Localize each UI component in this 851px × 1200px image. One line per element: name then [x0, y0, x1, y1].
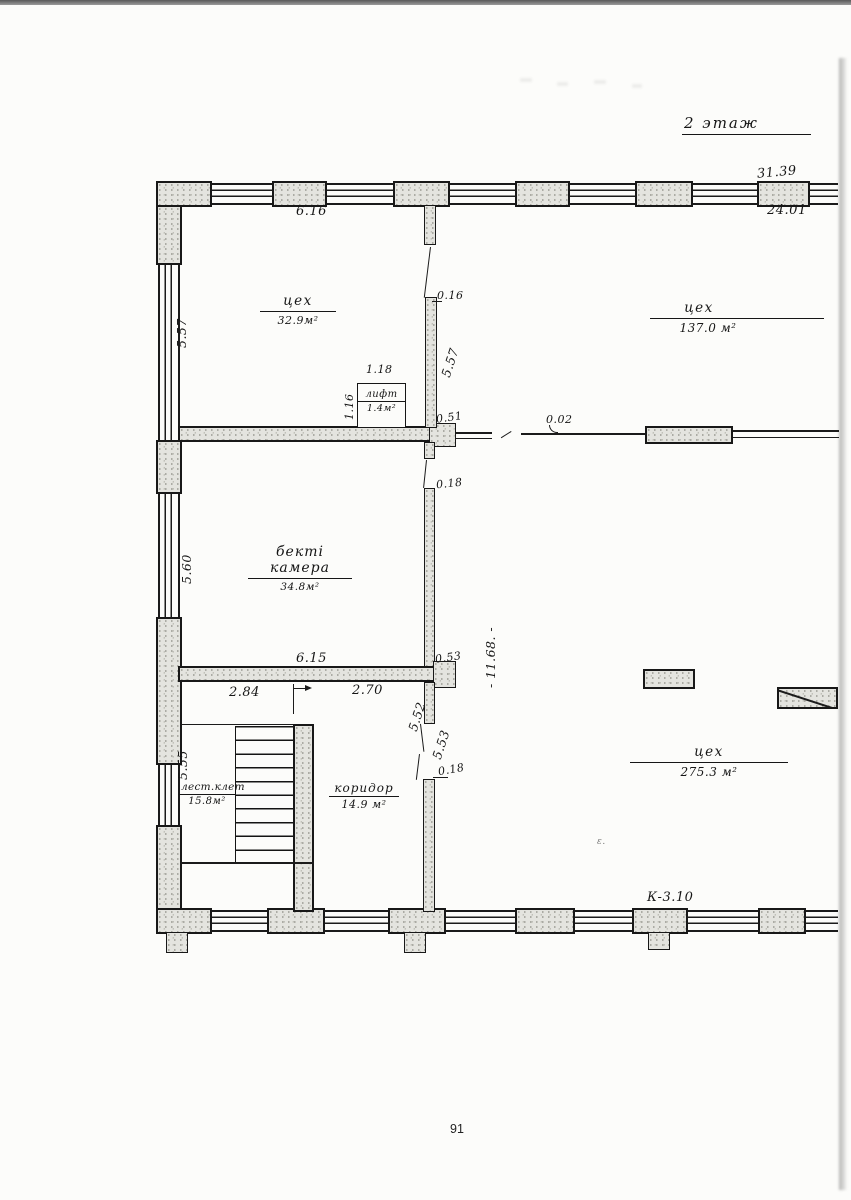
page-edge-shadow [839, 58, 847, 1190]
left-wall-pier [156, 440, 182, 494]
left-wall-window [158, 494, 180, 617]
stair-treads [235, 726, 293, 863]
scan-speck [557, 82, 568, 86]
left-wall-window [158, 265, 180, 440]
room-label-corridor: коридор 14.9 м² [329, 781, 399, 811]
bottom-wall-pier [632, 908, 688, 934]
pier-mid [645, 426, 733, 444]
room-area: 34.8м² [248, 579, 352, 593]
dim-partition-end-053: 0.53 [434, 650, 462, 665]
top-wall-corner-block [156, 181, 212, 207]
door-leaf-line [423, 460, 427, 488]
dim-corridor-lower-553: 5.53 [431, 729, 452, 761]
page-number: 91 [450, 1122, 464, 1136]
scanned-floor-plan-page: 2 этаж [0, 0, 851, 1200]
top-wall-pier [635, 181, 693, 207]
door-leaf-line [424, 247, 431, 298]
room-area: 32.9м² [260, 312, 336, 327]
top-wall-pier [515, 181, 570, 207]
dim-left-window-middle: 5.60 [181, 554, 194, 584]
top-wall-window [327, 183, 393, 205]
stair-side-wall [293, 724, 314, 912]
room-area: 1.4м² [358, 402, 405, 414]
dim-top-inner: 24.01 [767, 204, 807, 217]
scan-speck [594, 80, 606, 84]
dim-left-window-lower: 5.55 [177, 750, 190, 780]
room-name: цех [260, 293, 336, 312]
room-name: цех [630, 744, 788, 763]
thin-wall [456, 432, 492, 439]
dim-left-window-upper: 5.57 [176, 318, 189, 348]
door-leaf-line [501, 431, 512, 438]
dim-top-total: 31.39 [757, 164, 798, 180]
dim-seg-284: 2.84 [229, 686, 260, 699]
top-wall-window [693, 183, 757, 205]
dim-mid-door-018: 0.18 [435, 477, 463, 491]
door-leaf-line [416, 754, 420, 780]
room-area: 275.3 м² [630, 763, 788, 779]
pilaster [166, 932, 188, 953]
room-name: цех [650, 300, 824, 319]
dim-big-room-depth: - 11.68. - [485, 627, 498, 688]
bottom-wall-pier [758, 908, 806, 934]
left-wall-pier [156, 825, 182, 912]
arrowhead [305, 685, 312, 691]
room-name: бекті камера [248, 544, 352, 579]
bottom-wall-pier [515, 908, 575, 934]
dim-lift-depth: 1.16 [344, 394, 355, 421]
center-wall-stub [424, 205, 436, 245]
dim-mid-wall-offset: 0.16 [437, 290, 464, 301]
top-wall-window [212, 183, 272, 205]
left-wall-corner-block [156, 205, 182, 265]
bottom-wall-window [325, 910, 388, 932]
top-wall-window [570, 183, 635, 205]
bottom-wall-window [688, 910, 758, 932]
column-block-crossed [777, 687, 838, 709]
room-label-staircase: лест.клет 15.8м² [179, 781, 235, 807]
center-wall-bottom [423, 779, 435, 912]
dim-junction-051: 0.51 [435, 410, 463, 425]
leader-002 [549, 425, 558, 433]
scan-speck [632, 84, 642, 88]
stair-room-bottom-line [180, 862, 314, 864]
scan-top-edge [0, 0, 851, 5]
bottom-wall-pier [388, 908, 446, 934]
room-name: лест.клет [179, 781, 235, 795]
partition-upper [178, 426, 436, 442]
room-name: коридор [329, 781, 399, 797]
top-wall-window [810, 183, 838, 205]
left-wall-pier [156, 617, 182, 765]
dim-bottom-mark: К-3.10 [647, 891, 693, 904]
dim-mid-wall-length: 5.57 [440, 347, 461, 379]
floor-title: 2 этаж [682, 116, 811, 135]
room-name: лифт [358, 389, 405, 402]
pilaster [648, 932, 670, 950]
dim-lift-width: 1.18 [366, 364, 393, 375]
bottom-wall-window [446, 910, 515, 932]
scan-speck [520, 78, 532, 82]
top-wall-window [450, 183, 515, 205]
dim-thin-wall-002: 0.02 [546, 414, 573, 425]
dim-room1-width: 6.16 [296, 205, 327, 218]
room-label-workshop-large: цех 275.3 м² [630, 744, 788, 779]
bottom-wall-corner-block [156, 908, 212, 934]
dim-seg-270: 2.70 [352, 684, 383, 697]
center-wall-upper [425, 297, 437, 428]
center-wall-stub [424, 442, 435, 459]
column-block [643, 669, 695, 689]
room-label-lift: лифт 1.4м² [358, 389, 405, 414]
dim-corridor-door-018: 0.18 [437, 762, 465, 777]
bottom-wall-window [575, 910, 632, 932]
thin-wall [733, 430, 839, 438]
bottom-wall-window [212, 910, 267, 932]
diagonal-line [777, 689, 838, 709]
room-label-workshop-top-right: цех 137.0 м² [650, 300, 824, 335]
pilaster [404, 932, 426, 953]
bottom-wall-window [806, 910, 838, 932]
stray-mark: ε. [597, 838, 606, 847]
room-area: 137.0 м² [650, 319, 824, 335]
top-wall-pier [393, 181, 450, 207]
dim-partition-length: 6.15 [296, 652, 327, 665]
thin-wall [521, 433, 645, 436]
room-label-chamber: бекті камера 34.8м² [248, 544, 352, 593]
room-area: 14.9 м² [329, 797, 399, 811]
center-wall-mid [424, 488, 435, 668]
room-label-workshop-top-left: цех 32.9м² [260, 293, 336, 327]
partition-lower [178, 666, 436, 682]
room-area: 15.8м² [179, 795, 235, 807]
